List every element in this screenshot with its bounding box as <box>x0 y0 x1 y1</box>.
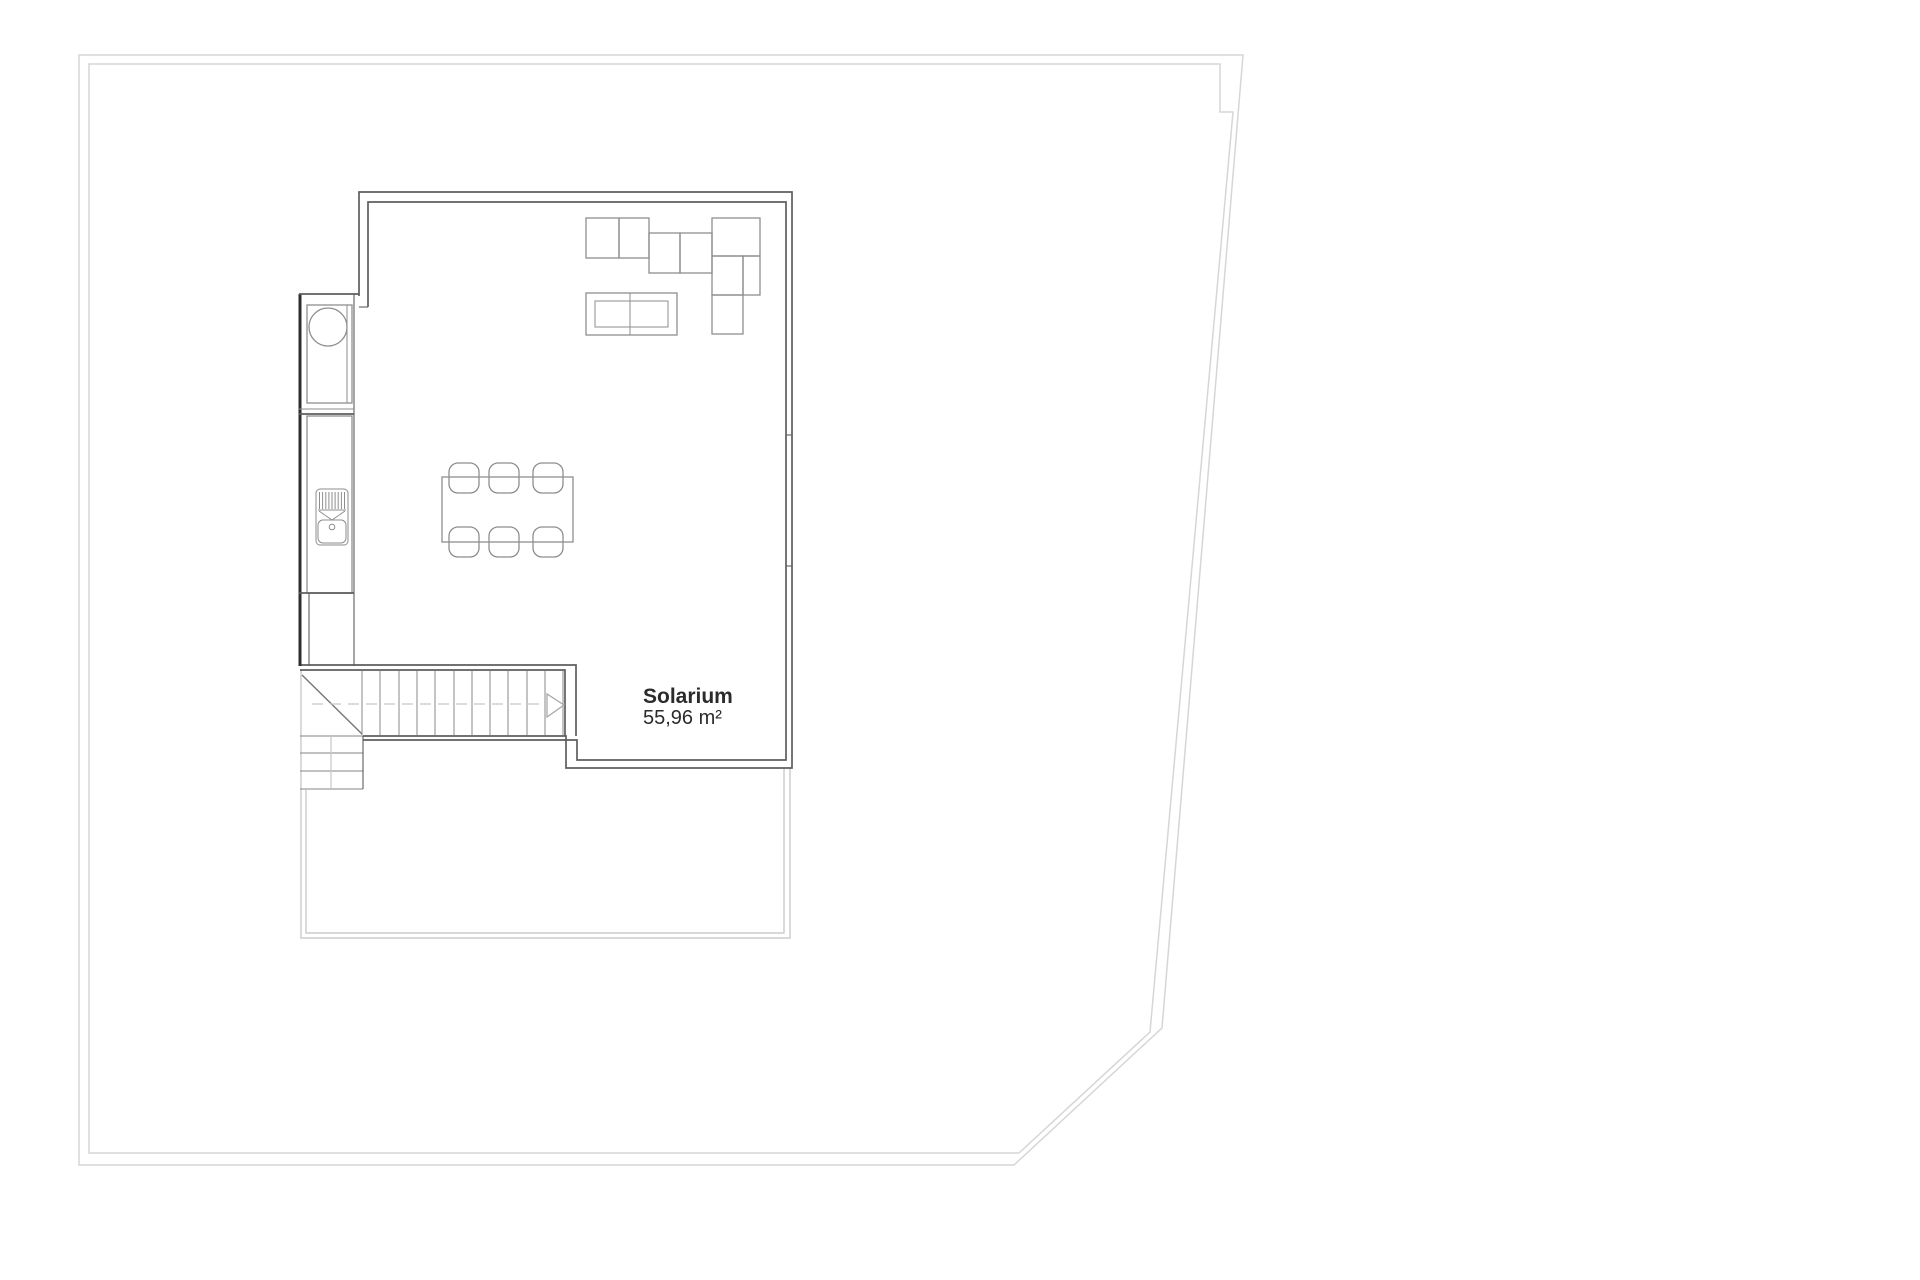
sofa-corner-module <box>712 218 760 256</box>
round-basin-icon <box>309 308 347 346</box>
coffee-table-outer <box>586 293 677 335</box>
kitchen-counter <box>299 294 359 666</box>
terrace-edge-inner <box>306 768 784 933</box>
floor-plan-page: Solarium 55,96 m² <box>0 0 1920 1280</box>
sofa-module <box>586 218 619 258</box>
coffee-table <box>586 293 677 335</box>
sofa-module <box>649 233 680 273</box>
room-name-label: Solarium <box>643 685 733 708</box>
property-boundary <box>79 55 1243 1165</box>
dining-table <box>442 477 573 542</box>
stair-side-wall-inner <box>300 670 565 736</box>
dining-set <box>442 463 573 557</box>
property-boundary-inner <box>89 64 1233 1153</box>
sink-grill-icon <box>316 489 348 545</box>
sofa-module <box>712 256 743 295</box>
sofa-armrest <box>743 256 760 295</box>
dining-chair <box>533 463 563 493</box>
sofa-module <box>712 295 743 334</box>
stair-direction-arrow-icon <box>547 694 564 717</box>
counter-unit-bottom <box>307 416 352 593</box>
solarium-label: Solarium 55,96 m² <box>643 685 733 729</box>
sofa-module <box>680 233 712 273</box>
stair-side-wall-outer <box>300 665 576 736</box>
room-area-label: 55,96 m² <box>643 707 722 729</box>
building-walls <box>300 192 792 768</box>
room-wall-inner <box>363 202 786 760</box>
property-boundary-outer <box>79 55 1243 1165</box>
solarium-floor-plan: Solarium 55,96 m² <box>0 0 1920 1280</box>
sofa-module <box>619 218 649 258</box>
sectional-sofa <box>586 218 760 334</box>
dining-chair <box>489 463 519 493</box>
coffee-table-inner <box>595 301 668 327</box>
dining-chair <box>449 463 479 493</box>
staircase <box>300 671 564 789</box>
